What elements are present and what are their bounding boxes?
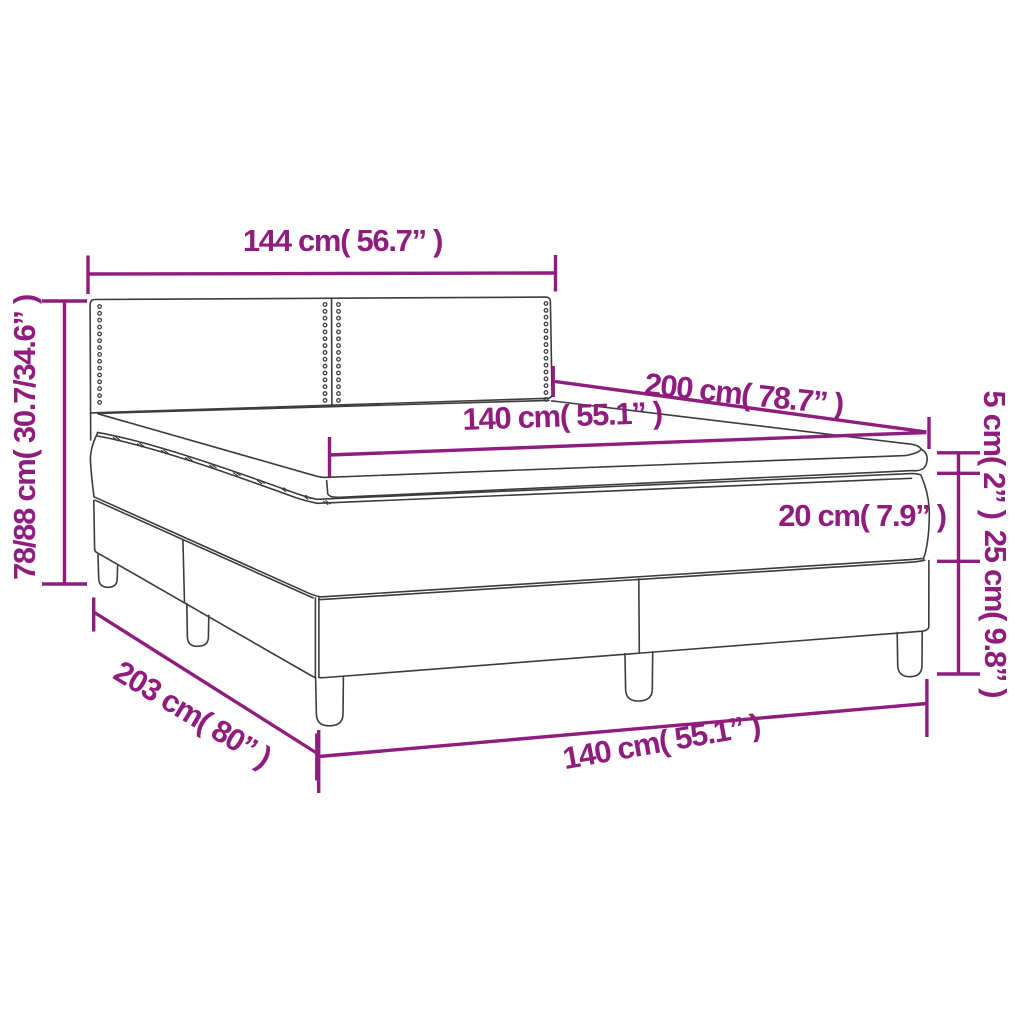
svg-text:144 cm( 56.7” ): 144 cm( 56.7” ) — [243, 223, 442, 258]
svg-text:20 cm( 7.9” ): 20 cm( 7.9” ) — [778, 498, 945, 533]
svg-text:25 cm( 9.8” ): 25 cm( 9.8” ) — [978, 530, 1013, 697]
svg-text:140 cm( 55.1” ): 140 cm( 55.1” ) — [462, 395, 662, 437]
svg-text:5 cm( 2” ): 5 cm( 2” ) — [977, 390, 1012, 518]
svg-text:78/88 cm( 30.7/34.6” ): 78/88 cm( 30.7/34.6” ) — [7, 295, 42, 580]
